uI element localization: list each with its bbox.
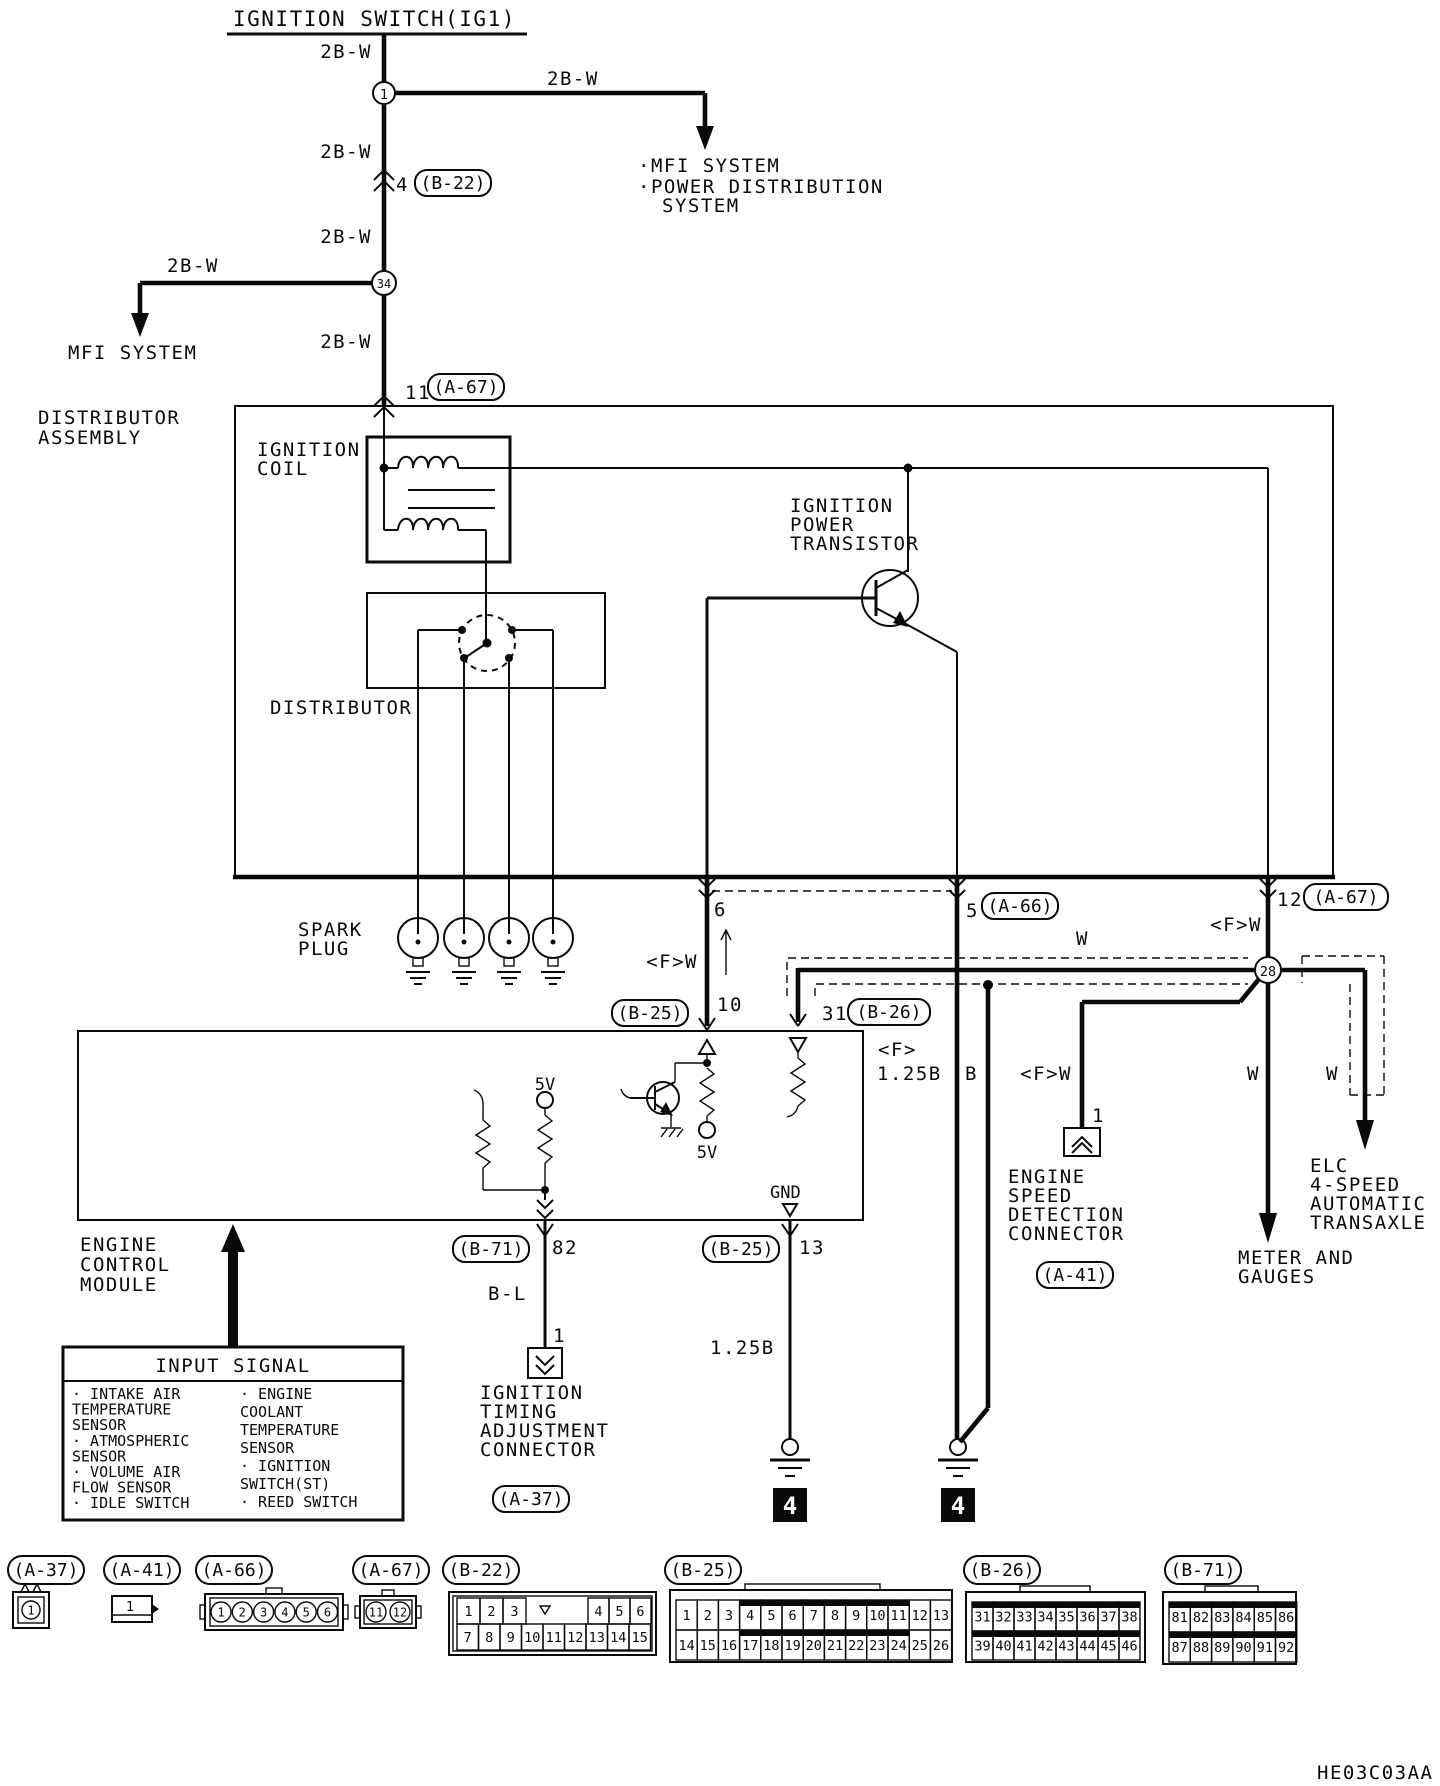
connector-a66: 123456 xyxy=(200,1588,348,1630)
5v-label: 5V xyxy=(697,1143,717,1163)
splice-number: 34 xyxy=(377,277,391,291)
ignition-switch-feed: IGNITION SWITCH(IG1) 2B-W ·MFI SYSTEM ·P… xyxy=(68,7,884,417)
connector-chevron-icon xyxy=(536,1356,554,1374)
connector-pin-number: 92 xyxy=(1278,1640,1294,1656)
connector-ref: (A-41) xyxy=(109,1560,174,1581)
arrow-down-icon xyxy=(1356,1120,1374,1150)
connector-pin-number: 81 xyxy=(1172,1610,1188,1626)
connector-pin-number: 4 xyxy=(281,1606,288,1620)
ignition-coil-label-2: COIL xyxy=(257,458,309,480)
pin12-wire: 12 (A-67) <F>W xyxy=(1210,468,1388,1215)
input-signal-header: INPUT SIGNAL xyxy=(155,1355,310,1377)
connector-pin-cell: 1 xyxy=(126,1599,134,1615)
input-signal-col1: · INTAKE AIR TEMPERATURE SENSOR· ATMOSPH… xyxy=(72,1385,189,1512)
distributor-label: DISTRIBUTOR xyxy=(270,697,412,719)
spark-plug xyxy=(398,877,438,984)
connector-pin-number: 32 xyxy=(995,1610,1011,1626)
connector-pin-number: 10 xyxy=(869,1608,885,1624)
connector-ref: (A-41) xyxy=(1042,1265,1107,1286)
splice-number: 1 xyxy=(380,87,388,103)
ecm-ground-wire: 13 (B-25) 1.25B 4 xyxy=(703,1220,825,1522)
arrow-down-icon xyxy=(1259,1213,1277,1243)
ground-point-number: 4 xyxy=(951,1492,965,1520)
connector-pin-number: 39 xyxy=(974,1639,990,1655)
connector-pin-number: 5 xyxy=(303,1606,310,1620)
connector-pin-number: 89 xyxy=(1214,1640,1230,1656)
wire-code: <F>W xyxy=(1210,914,1262,936)
connector-pin-number: 84 xyxy=(1235,1610,1251,1626)
connector-a41: 1 xyxy=(112,1596,159,1622)
connector-pin-number: 14 xyxy=(678,1638,694,1654)
pin-number: 13 xyxy=(799,1237,825,1259)
spark-plug xyxy=(489,877,529,984)
input-signal-item: TEMPERATURE xyxy=(240,1421,339,1439)
power-distribution-label-2: SYSTEM xyxy=(662,195,740,217)
connector-pin-number: 13 xyxy=(933,1608,949,1624)
input-signal-item: · IGNITION xyxy=(240,1457,330,1475)
pin-number: 1 xyxy=(1092,1105,1105,1127)
ground-icon xyxy=(782,1439,798,1455)
page-title: IGNITION SWITCH(IG1) xyxy=(233,7,516,31)
connector-pin-number: 15 xyxy=(632,1630,648,1646)
arrow-up-icon xyxy=(221,1224,245,1252)
connector-pin-number: 26 xyxy=(933,1638,949,1654)
connector-ref: (B-26) xyxy=(969,1560,1034,1581)
distributor: DISTRIBUTOR xyxy=(270,593,605,877)
ecm-label-3: MODULE xyxy=(80,1274,158,1296)
connector-pin-number: 83 xyxy=(1214,1610,1230,1626)
wire-code: 2B-W xyxy=(167,255,219,277)
input-signal-item: · REED SWITCH xyxy=(240,1493,357,1511)
pin-number: 1 xyxy=(553,1325,566,1347)
connector-pin-number: 90 xyxy=(1235,1640,1251,1656)
connector-a37: 1 xyxy=(13,1584,49,1628)
connector-pin-number: 17 xyxy=(742,1638,758,1654)
connector-pin-number: 14 xyxy=(610,1630,626,1646)
connector-ref: (A-67) xyxy=(1313,887,1378,908)
connector-ref: (A-37) xyxy=(498,1489,563,1510)
wire-code: 2B-W xyxy=(320,41,372,63)
index-mark-icon xyxy=(540,1606,550,1614)
connector-ref: (B-25) xyxy=(617,1003,682,1024)
connector-b26: 31323334353637383940414243444546 xyxy=(966,1586,1145,1662)
connector-pin-number: 8 xyxy=(485,1630,493,1646)
input-signal-item: · ENGINE xyxy=(240,1385,312,1403)
gnd-arrow-icon xyxy=(783,1204,797,1216)
pin-number: 10 xyxy=(717,994,743,1016)
input-signal-col2: · ENGINE COOLANT TEMPERATURE SENSOR· IGN… xyxy=(240,1385,357,1511)
connector-pin-number: 7 xyxy=(810,1608,818,1624)
connector-b22: 123456789101112131415 xyxy=(449,1592,656,1655)
coil-winding-icon xyxy=(398,519,458,530)
wiring-diagram-page: IGNITION SWITCH(IG1) 2B-W ·MFI SYSTEM ·P… xyxy=(0,0,1440,1786)
connector-ref: (B-22) xyxy=(420,173,485,194)
connector-pin-number: 6 xyxy=(324,1606,331,1620)
connector-pin-number: 82 xyxy=(1193,1610,1209,1626)
connector-pin-number: 38 xyxy=(1121,1610,1137,1626)
ground-point-number: 4 xyxy=(783,1492,797,1520)
connector-pin-number: 11 xyxy=(890,1608,906,1624)
connector-pin-number: 43 xyxy=(1058,1639,1074,1655)
connector-pin-number: 85 xyxy=(1257,1610,1273,1626)
connector-ref: (A-37) xyxy=(13,1560,78,1581)
connector-pin-number: 40 xyxy=(995,1639,1011,1655)
connector-pin-number: 25 xyxy=(912,1638,928,1654)
wire-code: 1.25B xyxy=(710,1337,775,1359)
distributor-assembly-label: DISTRIBUTOR xyxy=(38,407,180,429)
connector-ref: (A-67) xyxy=(433,377,498,398)
connector-pin-number: 2 xyxy=(704,1608,712,1624)
shield-ground: 4 xyxy=(938,1439,978,1522)
connector-pin-number: 11 xyxy=(546,1630,562,1646)
ignition-coil: IGNITION COIL xyxy=(257,406,1268,640)
ground-icon xyxy=(661,1128,683,1137)
input-signal-item: COOLANT xyxy=(240,1403,303,1421)
connector-pin-number: 86 xyxy=(1278,1610,1294,1626)
input-signal-item: · IDLE SWITCH xyxy=(72,1494,189,1512)
transistor-label-3: TRANSISTOR xyxy=(790,533,919,555)
connector-pin-number: 10 xyxy=(524,1630,540,1646)
connector-pin-number: 46 xyxy=(1121,1639,1137,1655)
connector-pin-number: 31 xyxy=(974,1610,990,1626)
connector-b71: 818283848586878889909192 xyxy=(1163,1586,1297,1664)
connector-pin-number: 33 xyxy=(1016,1610,1032,1626)
wire-code: B xyxy=(965,1063,978,1085)
connector-pin-number: 2 xyxy=(239,1606,246,1620)
pin-number: 5 xyxy=(966,900,979,922)
connector-pin-number: 21 xyxy=(827,1638,843,1654)
connector-pin-number: 15 xyxy=(700,1638,716,1654)
connector-pin-number: 4 xyxy=(746,1608,754,1624)
mfi-system-right-label: ·MFI SYSTEM xyxy=(638,155,780,177)
ground-icon xyxy=(950,1439,966,1455)
connector-ref: (A-66) xyxy=(201,1560,266,1581)
connector-chevron-icon xyxy=(537,1200,553,1218)
wire-code: W xyxy=(1247,1063,1260,1085)
connector-ref: (B-71) xyxy=(1170,1560,1235,1581)
connector-pin-number: 12 xyxy=(912,1608,928,1624)
wire-code: W xyxy=(1076,928,1089,950)
connector-pin-number: 42 xyxy=(1037,1639,1053,1655)
connector-pin-number: 36 xyxy=(1079,1610,1095,1626)
spark-plug-label-2: PLUG xyxy=(298,938,350,960)
itac-label-4: CONNECTOR xyxy=(480,1439,596,1461)
connector-pin-number: 11 xyxy=(369,1606,383,1620)
input-signal-item: SENSOR xyxy=(240,1439,295,1457)
connector-pin-number: 41 xyxy=(1016,1639,1032,1655)
wire-code: <F>W xyxy=(646,951,698,973)
connector-pin-number: 2 xyxy=(487,1604,495,1620)
connector-pin-number: 19 xyxy=(784,1638,800,1654)
connector-pin-number: 44 xyxy=(1079,1639,1095,1655)
arrow-down-icon xyxy=(131,313,149,337)
connector-pin-number: 37 xyxy=(1100,1610,1116,1626)
pin-number: 31 xyxy=(822,1003,848,1025)
connector-ref: (B-25) xyxy=(708,1239,773,1260)
connector-ref: (B-25) xyxy=(670,1560,735,1581)
wire-code: 2B-W xyxy=(320,226,372,248)
meter-gauges-label-2: GAUGES xyxy=(1238,1266,1316,1288)
connector-pin-number: 1 xyxy=(27,1604,34,1618)
connector-pin-number: 91 xyxy=(1257,1640,1273,1656)
connector-pin-number: 24 xyxy=(890,1638,906,1654)
connector-pin-number: 1 xyxy=(217,1606,224,1620)
ignition-timing-adjustment: 82 (B-71) B-L 1 IGNITION TIMING ADJUSTME… xyxy=(453,1220,609,1512)
splice-number: 28 xyxy=(1260,964,1276,980)
connector-pin-number: 5 xyxy=(767,1608,775,1624)
connector-pin-number: 5 xyxy=(615,1604,623,1620)
pin-number: 82 xyxy=(552,1237,578,1259)
wire-code: 2B-W xyxy=(320,331,372,353)
elc-label-4: TRANSAXLE xyxy=(1310,1212,1426,1234)
connector-pin-number: 18 xyxy=(763,1638,779,1654)
connector-pin-number: 6 xyxy=(636,1604,644,1620)
distributor-assembly: DISTRIBUTOR ASSEMBLY IGNITION COIL IGNIT… xyxy=(38,406,1335,877)
connector-pin-number: 13 xyxy=(589,1630,605,1646)
connector-pin-number: 9 xyxy=(852,1608,860,1624)
spark-plug xyxy=(444,877,484,984)
wire-code: 2B-W xyxy=(320,141,372,163)
connector-ref: (B-71) xyxy=(458,1239,523,1260)
connector-pin-number: 23 xyxy=(869,1638,885,1654)
distributor-assembly-label-2: ASSEMBLY xyxy=(38,427,142,449)
connector-pin-number: 35 xyxy=(1058,1610,1074,1626)
connector-key-icon xyxy=(152,1604,159,1614)
connector-pin-number: 34 xyxy=(1037,1610,1053,1626)
connector-pin-number: 45 xyxy=(1100,1639,1116,1655)
connector-pin-number: 87 xyxy=(1172,1640,1188,1656)
connector-pin-number: 88 xyxy=(1193,1640,1209,1656)
connector-pin-number: 3 xyxy=(260,1606,267,1620)
connector-a67: 1112 xyxy=(355,1590,421,1628)
connector-pin-number: 12 xyxy=(567,1630,583,1646)
connector-pin-number: 20 xyxy=(806,1638,822,1654)
coil-winding-icon xyxy=(398,457,458,468)
pin-number: 11 xyxy=(405,382,431,404)
spark-plug xyxy=(533,877,573,984)
ignition-power-transistor: IGNITION POWER TRANSISTOR xyxy=(707,464,957,878)
pin-number: 6 xyxy=(714,899,727,921)
connector-pin-number: 9 xyxy=(507,1630,515,1646)
pin-number: 12 xyxy=(1277,889,1303,911)
connector-pin-number: 7 xyxy=(464,1630,472,1646)
connector-ref: (A-67) xyxy=(358,1560,423,1581)
connector-pin-number: 8 xyxy=(831,1608,839,1624)
signal-arrow-icon xyxy=(699,1040,715,1054)
arrow-down-icon xyxy=(696,126,714,150)
connector-pin-number: 4 xyxy=(594,1604,602,1620)
connector-pin-number: 16 xyxy=(721,1638,737,1654)
ecm-label-2: CONTROL xyxy=(80,1254,171,1276)
connector-pin-number: 12 xyxy=(393,1606,407,1620)
spark-plugs: SPARK PLUG xyxy=(298,877,573,984)
connector-pin-number: 1 xyxy=(683,1608,691,1624)
wire-code: B-L xyxy=(488,1283,527,1305)
pin-number: 4 xyxy=(396,174,409,196)
diagram-code: HE03C03AA xyxy=(1317,1762,1433,1784)
wire-code: <F>W xyxy=(1020,1063,1072,1085)
connector-pin-number: 22 xyxy=(848,1638,864,1654)
connector-ref: (B-26) xyxy=(856,1002,921,1023)
wire-code: W xyxy=(1326,1063,1339,1085)
ignition-wiring-diagram: IGNITION SWITCH(IG1) 2B-W ·MFI SYSTEM ·P… xyxy=(0,0,1440,1786)
gnd-label: GND xyxy=(770,1183,801,1203)
esdc-label-4: CONNECTOR xyxy=(1008,1223,1124,1245)
wire-code: 2B-W xyxy=(547,68,599,90)
wire-code: <F> xyxy=(878,1039,917,1061)
connector-ref: (B-22) xyxy=(448,1560,513,1581)
connector-b25: 1234567891011121314151617181920212223242… xyxy=(670,1584,952,1662)
engine-speed-detection-connector: 1 ENGINE SPEED DETECTION CONNECTOR (A-41… xyxy=(1008,1105,1124,1288)
connector-pin-number: 3 xyxy=(510,1604,518,1620)
wire-code: 1.25B xyxy=(877,1063,942,1085)
connector-pin-number: 1 xyxy=(464,1604,472,1620)
connector-ref: (A-66) xyxy=(987,896,1052,917)
connector-legend: (A-37) (A-41) (A-66) (A-67) (B-22) (B-25… xyxy=(8,1556,1297,1664)
connector-pin-number: 3 xyxy=(725,1608,733,1624)
ecm-label: ENGINE xyxy=(80,1234,158,1256)
mfi-system-left-label: MFI SYSTEM xyxy=(68,342,197,364)
connector-pin-number: 6 xyxy=(789,1608,797,1624)
connector-chevron-icon xyxy=(1072,1137,1092,1153)
signal-arrow-icon xyxy=(790,1038,806,1052)
input-signal-item: SWITCH(ST) xyxy=(240,1475,330,1493)
pin5-wire: 5 (A-66) xyxy=(949,877,1058,1440)
